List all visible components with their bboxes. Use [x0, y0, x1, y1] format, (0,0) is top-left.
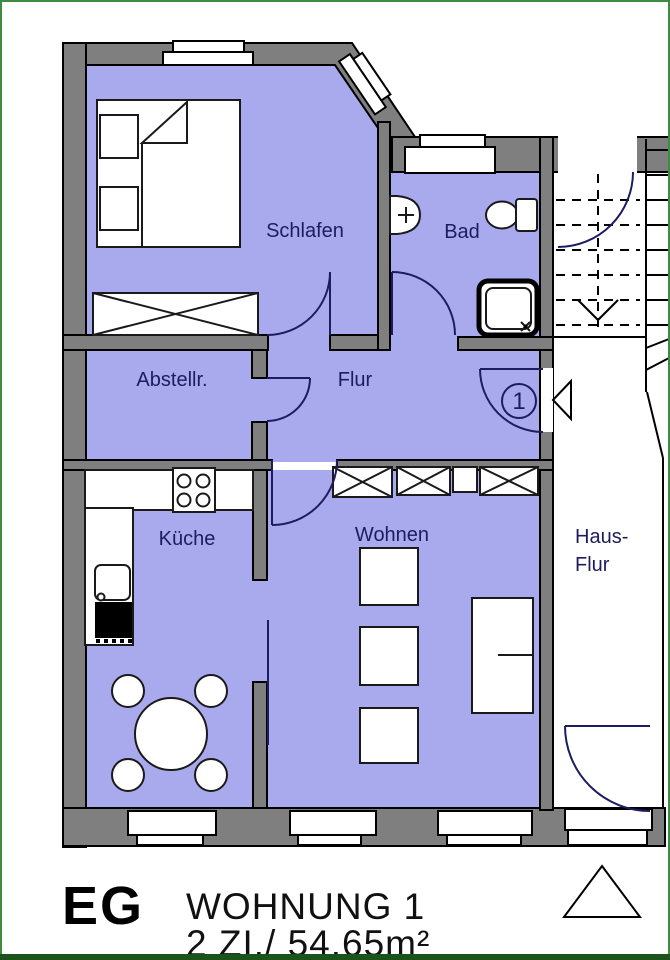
label-bad: Bad	[444, 221, 480, 243]
toilet	[486, 199, 537, 231]
wall-bad-south	[458, 337, 553, 350]
stair-winder-2	[646, 358, 669, 370]
hausflur-edge-diagonal	[647, 392, 663, 458]
apartment-number: 1	[512, 388, 525, 415]
kitchen-sink	[95, 565, 132, 641]
wall-schlafen-bad	[378, 122, 390, 350]
wohnen-tables	[360, 548, 418, 763]
window-schlafen	[163, 52, 253, 65]
footer-floor: EG	[62, 876, 144, 936]
window-wohnen-left-sill	[298, 835, 361, 845]
chair	[112, 759, 144, 791]
label-hausflur-1: Haus-	[575, 526, 628, 548]
footer: EG WOHNUNG 1 2 ZI./ 54.65m²	[62, 866, 640, 960]
wall-kueche-wohnen-lower	[253, 682, 267, 808]
floorplan-drawing: 1 Schlafen Bad Abstellr. Flur Küche Wohn…	[0, 0, 670, 960]
label-schlafen: Schlafen	[266, 220, 344, 242]
label-hausflur-2: Flur	[575, 554, 610, 576]
chair	[195, 759, 227, 791]
wall-abstell-flur-upper	[252, 350, 267, 378]
door-building-entry	[565, 726, 650, 811]
floorplan-page: 1 Schlafen Bad Abstellr. Flur Küche Wohn…	[0, 0, 670, 960]
hausflur-entry-opening	[565, 809, 652, 830]
stairwell-door-opening	[558, 136, 637, 174]
nightstand-bottom	[100, 187, 138, 230]
wall-kueche-wohnen-upper	[253, 470, 267, 580]
wall-kueche-north	[63, 460, 272, 470]
apartment-entry-opening	[541, 368, 553, 432]
stair-winder-1	[646, 339, 669, 348]
door-stairwell-top	[558, 172, 633, 247]
window-wohnen-right-sill	[447, 835, 521, 845]
room-abstellraum-floor	[86, 350, 252, 462]
wall-abstell-flur-lower	[252, 422, 267, 462]
room-flur-floor	[252, 337, 540, 462]
label-abstellraum: Abstellr.	[136, 369, 207, 391]
bath-sink	[390, 196, 420, 234]
wohnen-sideboard	[472, 598, 533, 713]
label-flur: Flur	[338, 369, 373, 391]
chair	[112, 675, 144, 707]
chair	[195, 675, 227, 707]
shower	[479, 281, 537, 335]
window-wohnen-left	[290, 811, 376, 835]
wall-left	[63, 43, 86, 847]
wall-right-stairwell	[540, 137, 553, 810]
window-kueche	[128, 811, 216, 835]
wardrobe-schlafen	[93, 293, 258, 335]
window-kueche-sill	[137, 835, 203, 845]
footer-title: WOHNUNG 1	[186, 886, 425, 927]
stair-arrow-left	[578, 300, 598, 320]
table	[135, 698, 207, 770]
stair-arrow-right	[598, 300, 618, 320]
label-wohnen: Wohnen	[355, 524, 429, 546]
window-bad	[405, 147, 495, 173]
bed	[97, 100, 240, 247]
wall-schlafen-south-left	[63, 335, 268, 350]
hausflur-entry-step	[568, 830, 647, 845]
nightstand-top	[100, 115, 138, 158]
entry-triangle-icon	[553, 381, 571, 419]
label-kueche: Küche	[159, 528, 216, 550]
window-wohnen-right	[438, 811, 532, 835]
closet-row-wohnen	[333, 467, 538, 497]
stairwell	[553, 139, 669, 808]
window-bad-sill	[420, 135, 485, 147]
north-triangle-icon	[564, 866, 640, 917]
